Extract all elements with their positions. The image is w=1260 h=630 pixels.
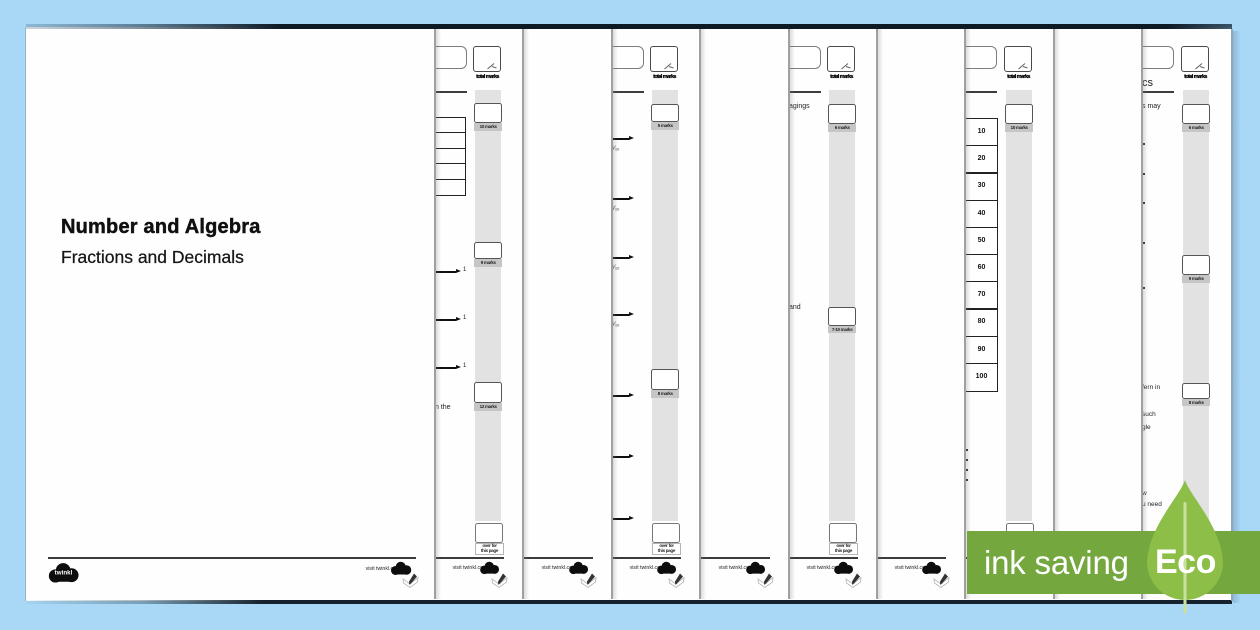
svg-text:twinkl: twinkl bbox=[55, 569, 73, 576]
